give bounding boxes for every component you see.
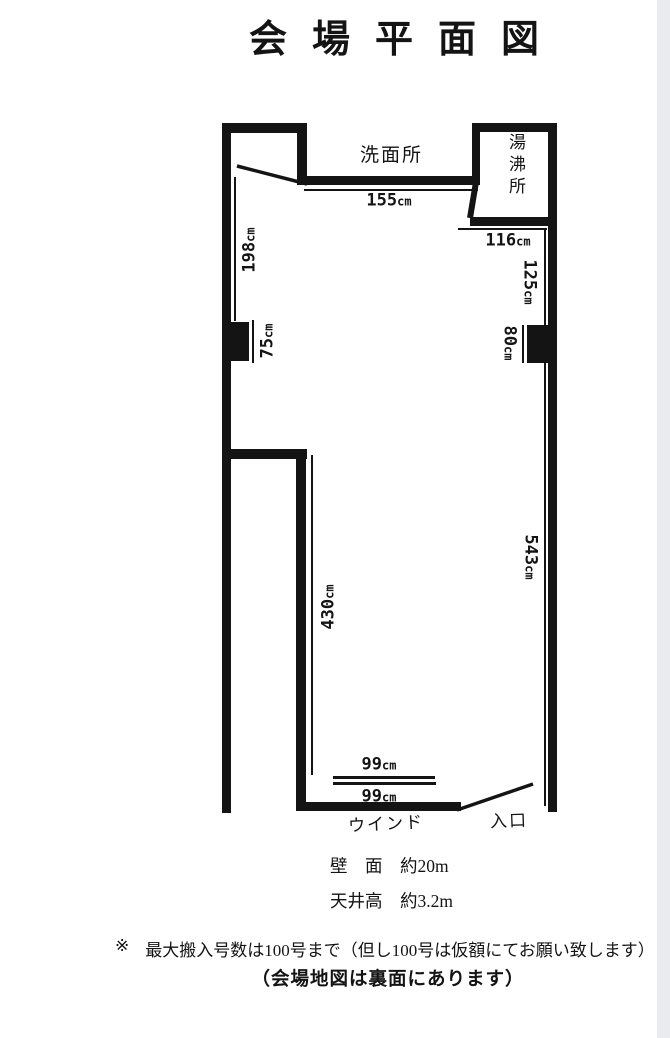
floorplan-document: 会場平面図 洗面所 湯沸所 ウインド 入口 155cm 116cm 125cm … bbox=[0, 0, 670, 1038]
reference-mark: ※ bbox=[115, 936, 129, 961]
dim-116cm: 116cm bbox=[485, 233, 530, 250]
pillar-left bbox=[222, 322, 249, 361]
map-location-note: （会場地図は裏面にあります） bbox=[251, 965, 524, 991]
dim-75cm: 75cm bbox=[260, 324, 277, 359]
wall-right bbox=[548, 123, 557, 812]
scan-edge-shadow bbox=[657, 0, 670, 1038]
wall-washroom-counter bbox=[297, 176, 480, 185]
dimension-line-80 bbox=[522, 325, 524, 363]
wall-inner bbox=[296, 449, 306, 811]
wall-washroom-alcove-left bbox=[297, 123, 307, 183]
dimension-line-198 bbox=[234, 177, 236, 321]
dimension-line-430 bbox=[311, 455, 313, 775]
window-line-top bbox=[333, 776, 435, 779]
washroom-label: 洗面所 bbox=[360, 140, 423, 167]
wall-step bbox=[222, 449, 307, 459]
dim-99cm-top: 99cm bbox=[362, 757, 397, 774]
window-label: ウインド bbox=[347, 808, 424, 837]
page-title: 会場平面図 bbox=[249, 8, 564, 63]
wall-boiler-box-top bbox=[472, 123, 557, 132]
wall-surface-spec: 壁 面 約20m bbox=[330, 853, 449, 878]
dim-99cm-bottom: 99cm bbox=[362, 789, 397, 806]
max-size-note: ※ 最大搬入号数は100号まで（但し100号は仮額にてお願い致します） bbox=[115, 936, 655, 961]
dim-430cm: 430cm bbox=[321, 584, 338, 629]
dimension-line-75 bbox=[252, 320, 254, 363]
entrance-label: 入口 bbox=[490, 806, 529, 832]
wall-left bbox=[222, 123, 231, 813]
max-size-note-text: 最大搬入号数は100号まで（但し100号は仮額にてお願い致します） bbox=[145, 936, 655, 961]
dim-125cm: 125cm bbox=[521, 259, 538, 304]
wall-top-left bbox=[222, 123, 307, 133]
dimension-line-right bbox=[544, 230, 546, 806]
dim-80cm: 80cm bbox=[501, 326, 518, 361]
hot-water-room-label: 湯沸所 bbox=[503, 133, 528, 199]
dim-198cm: 198cm bbox=[242, 227, 259, 272]
wall-boiler-box-left bbox=[472, 123, 480, 178]
window-line-bottom bbox=[333, 782, 436, 785]
diagonal-lines bbox=[0, 0, 670, 1038]
dim-543cm: 543cm bbox=[522, 534, 539, 579]
dim-155cm: 155cm bbox=[366, 193, 411, 210]
ceiling-height-spec: 天井高 約3.2m bbox=[330, 888, 453, 913]
pillar-right bbox=[527, 325, 553, 363]
wall-boiler-box-bottom bbox=[470, 217, 557, 226]
